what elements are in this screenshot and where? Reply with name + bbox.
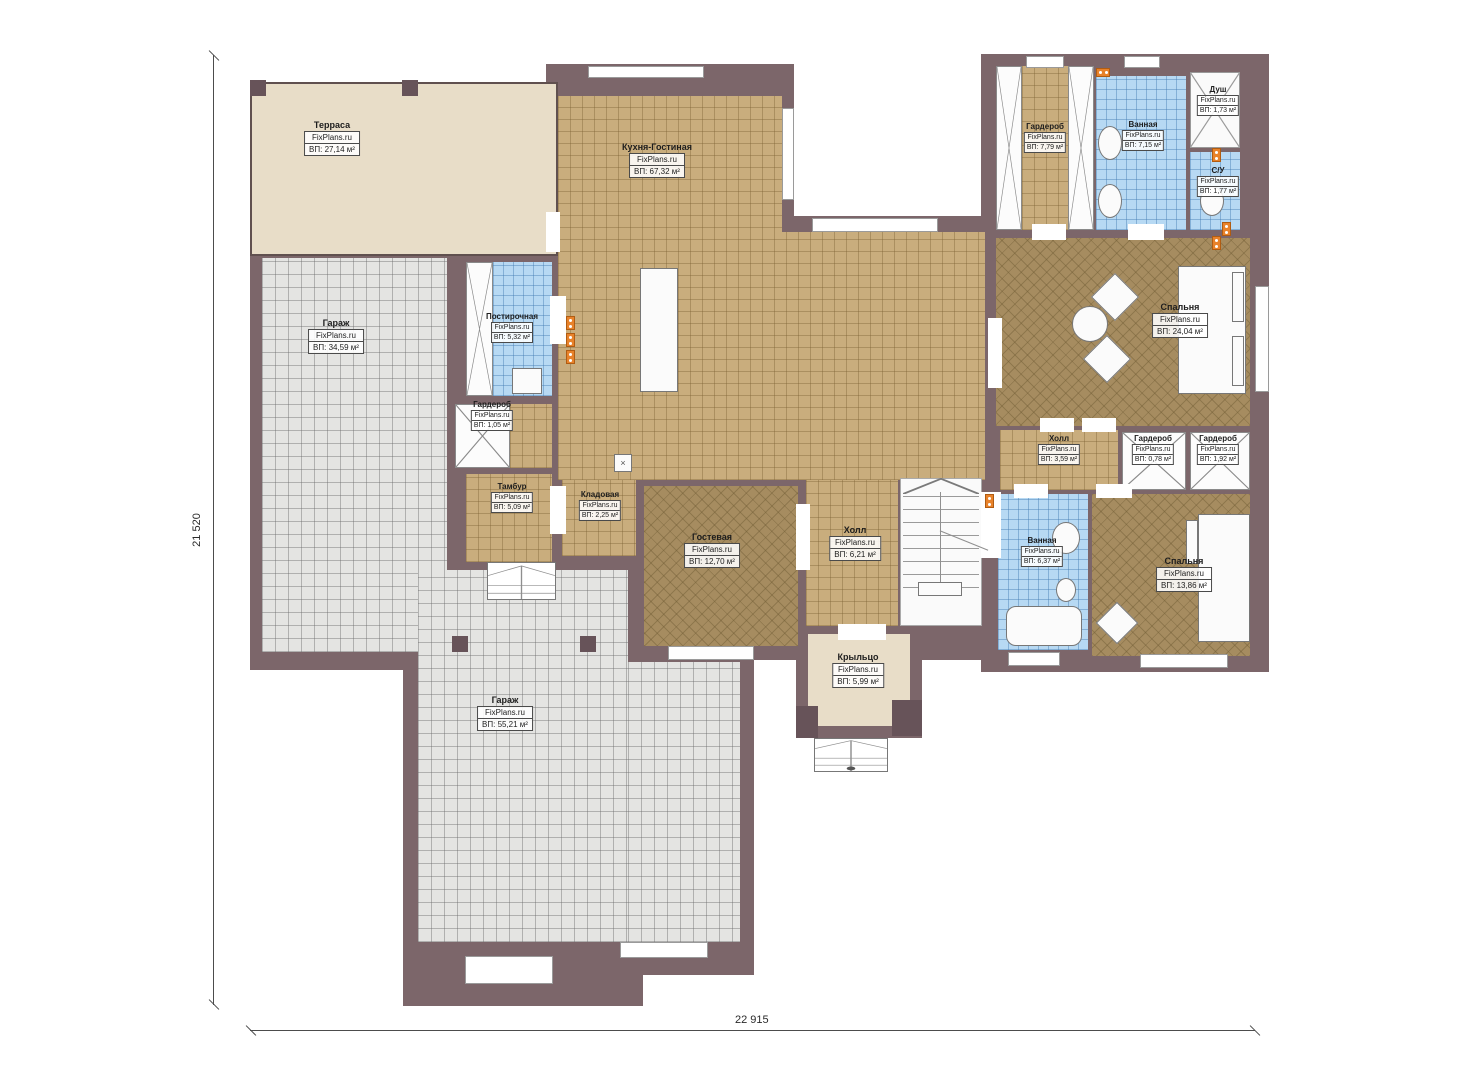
room-label-terrace: Терраса FixPlans.ru ВП: 27,14 м²: [304, 120, 360, 157]
room-label-kitchen: Кухня-Гостиная FixPlans.ru ВП: 67,32 м²: [622, 142, 692, 179]
brand-watermark: FixPlans.ru: [492, 323, 532, 333]
room-garage2-floor: [628, 662, 740, 942]
dimension-label-bottom: 22 915: [735, 1014, 769, 1026]
door-opening: [838, 624, 886, 640]
floor-plan: × Терраса FixPlans.ru ВП: 27,14 м²: [0, 0, 1474, 1080]
door-opening: [796, 504, 810, 570]
room-area: ВП: 1,92 м²: [1198, 455, 1238, 464]
brand-watermark: FixPlans.ru: [1025, 133, 1065, 143]
room-area: ВП: 1,73 м²: [1198, 106, 1238, 115]
dimension-tick: [209, 50, 220, 61]
brand-watermark: FixPlans.ru: [830, 537, 880, 549]
room-area: ВП: 27,14 м²: [305, 144, 359, 155]
brand-watermark: FixPlans.ru: [1157, 568, 1211, 580]
pillow-icon: [1232, 336, 1244, 386]
sink-icon: [1098, 184, 1122, 218]
wardrobe-x-icon: [1068, 66, 1094, 230]
room-terrace-floor: [250, 82, 558, 256]
room-name: Ванная: [1122, 120, 1164, 129]
room-area: ВП: 12,70 м²: [685, 556, 739, 567]
outlet-icon: [1212, 148, 1221, 162]
room-label-wardrobe779: Гардероб FixPlans.ru ВП: 7,79 м²: [1024, 122, 1066, 154]
room-name: Крыльцо: [832, 652, 884, 662]
room-area: ВП: 5,09 м²: [492, 503, 532, 512]
room-name: Гардероб: [1132, 434, 1174, 443]
room-label-wc: С/У FixPlans.ru ВП: 1,77 м²: [1197, 166, 1239, 198]
room-name: Спальня: [1156, 556, 1212, 566]
room-garage2-floor: [418, 570, 628, 942]
room-area: ВП: 6,21 м²: [830, 549, 880, 560]
brand-watermark: FixPlans.ru: [685, 544, 739, 556]
room-area: ВП: 1,05 м²: [472, 421, 512, 430]
room-area: ВП: 55,21 м²: [478, 719, 532, 730]
room-label-garage2: Гараж FixPlans.ru ВП: 55,21 м²: [477, 695, 533, 732]
room-wardrobe105-floor: [510, 404, 552, 468]
door-opening: [1014, 484, 1048, 498]
sink-icon: [1056, 578, 1076, 602]
brand-watermark: FixPlans.ru: [305, 132, 359, 144]
window: [1026, 56, 1064, 68]
brand-watermark: FixPlans.ru: [478, 707, 532, 719]
stair-up-arrow-icon: [903, 478, 979, 494]
terrace-pillar: [250, 80, 266, 96]
door-opening: [988, 318, 1002, 388]
door-opening: [1040, 418, 1074, 432]
brand-watermark: FixPlans.ru: [1198, 177, 1238, 187]
room-area: ВП: 67,32 м²: [630, 166, 684, 177]
brand-watermark: FixPlans.ru: [1198, 445, 1238, 455]
garage-pillar: [580, 636, 596, 652]
stair-landing: [918, 582, 962, 596]
door-opening: [1032, 224, 1066, 240]
room-name: Кухня-Гостиная: [622, 142, 692, 152]
washing-machine-icon: [512, 368, 542, 394]
brand-watermark: FixPlans.ru: [1022, 547, 1062, 557]
outlet-icon: [985, 494, 994, 508]
window: [1255, 286, 1269, 392]
stair-center-line: [940, 492, 941, 590]
table-x-icon: ×: [614, 454, 632, 472]
porch-steps-icon: [814, 738, 888, 772]
dimension-tick: [209, 999, 220, 1010]
window: [668, 646, 754, 660]
brand-watermark: FixPlans.ru: [1039, 445, 1079, 455]
outlet-icon: [566, 316, 575, 330]
room-area: ВП: 7,79 м²: [1025, 143, 1065, 152]
room-label-bathroom637: Ванная FixPlans.ru ВП: 6,37 м²: [1021, 536, 1063, 568]
room-name: Душ: [1197, 85, 1239, 94]
door-opening: [546, 212, 560, 252]
wardrobe-x-icon: [996, 66, 1022, 230]
room-name: Гараж: [308, 318, 364, 328]
sink-icon: [1098, 126, 1122, 160]
brand-watermark: FixPlans.ru: [1123, 131, 1163, 141]
room-area: ВП: 34,59 м²: [309, 342, 363, 353]
round-table-icon: [1072, 306, 1108, 342]
outlet-icon: [1096, 68, 1110, 77]
brand-watermark: FixPlans.ru: [580, 501, 620, 511]
room-name: Тамбур: [491, 482, 533, 491]
room-label-hall359: Холл FixPlans.ru ВП: 3,59 м²: [1038, 434, 1080, 466]
room-name: С/У: [1197, 166, 1239, 175]
room-label-wardrobe105: Гардероб FixPlans.ru ВП: 1,05 м²: [471, 400, 513, 432]
window: [812, 218, 938, 232]
room-area: ВП: 3,59 м²: [1039, 455, 1079, 464]
outlet-icon: [1212, 236, 1221, 250]
room-label-bedroom24: Спальня FixPlans.ru ВП: 24,04 м²: [1152, 302, 1208, 339]
pillow-icon: [1232, 272, 1244, 322]
door-opening: [550, 296, 566, 344]
room-area: ВП: 1,77 м²: [1198, 187, 1238, 196]
terrace-pillar: [402, 80, 418, 96]
kitchen-island-icon: [640, 268, 678, 392]
room-label-wardrobe192: Гардероб FixPlans.ru ВП: 1,92 м²: [1197, 434, 1239, 466]
room-name: Холл: [1038, 434, 1080, 443]
room-area: ВП: 13,86 м²: [1157, 580, 1211, 591]
window: [1008, 652, 1060, 666]
bathtub-icon: [1006, 606, 1082, 646]
room-label-shower: Душ FixPlans.ru ВП: 1,73 м²: [1197, 85, 1239, 117]
room-label-wardrobe078: Гардероб FixPlans.ru ВП: 0,78 м²: [1132, 434, 1174, 466]
brand-watermark: FixPlans.ru: [1133, 445, 1173, 455]
room-label-laundry: Постирочная FixPlans.ru ВП: 5,32 м²: [486, 312, 538, 344]
room-name: Гостевая: [684, 532, 740, 542]
dimension-label-left: 21 520: [191, 513, 203, 547]
room-area: ВП: 7,15 м²: [1123, 141, 1163, 150]
brand-watermark: FixPlans.ru: [1198, 96, 1238, 106]
room-label-tambour: Тамбур FixPlans.ru ВП: 5,09 м²: [491, 482, 533, 514]
room-name: Терраса: [304, 120, 360, 130]
window: [1124, 56, 1160, 68]
porch-pillar: [796, 706, 818, 738]
room-name: Гардероб: [1024, 122, 1066, 131]
room-label-garage1: Гараж FixPlans.ru ВП: 34,59 м²: [308, 318, 364, 355]
room-area: ВП: 2,25 м²: [580, 511, 620, 520]
room-name: Холл: [829, 525, 881, 535]
room-area: ВП: 5,32 м²: [492, 333, 532, 342]
room-area: ВП: 6,37 м²: [1022, 557, 1062, 566]
outlet-icon: [1222, 222, 1231, 236]
door-opening: [1096, 484, 1132, 498]
dimension-line-bottom: [250, 1030, 1255, 1031]
brand-watermark: FixPlans.ru: [492, 493, 532, 503]
brand-watermark: FixPlans.ru: [833, 664, 883, 676]
room-area: ВП: 5,99 м²: [833, 676, 883, 687]
garage-door: [620, 942, 708, 958]
central-hall-floor: [558, 232, 985, 480]
brand-watermark: FixPlans.ru: [1153, 314, 1207, 326]
room-label-porch: Крыльцо FixPlans.ru ВП: 5,99 м²: [832, 652, 884, 689]
door-opening: [1082, 418, 1116, 432]
door-opening: [1128, 224, 1164, 240]
room-area: ВП: 24,04 м²: [1153, 326, 1207, 337]
door-opening: [550, 486, 566, 534]
dimension-line-left: [213, 55, 214, 1005]
porch-pillar: [892, 700, 922, 736]
room-label-bedroom1386: Спальня FixPlans.ru ВП: 13,86 м²: [1156, 556, 1212, 593]
room-name: Ванная: [1021, 536, 1063, 545]
room-area: ВП: 0,78 м²: [1133, 455, 1173, 464]
room-name: Гардероб: [471, 400, 513, 409]
window: [782, 108, 794, 200]
garage-pillar: [452, 636, 468, 652]
room-name: Кладовая: [579, 490, 621, 499]
room-label-hall621: Холл FixPlans.ru ВП: 6,21 м²: [829, 525, 881, 562]
room-name: Спальня: [1152, 302, 1208, 312]
room-name: Гардероб: [1197, 434, 1239, 443]
window: [588, 66, 704, 78]
room-name: Гараж: [477, 695, 533, 705]
room-name: Постирочная: [486, 312, 538, 321]
brand-watermark: FixPlans.ru: [472, 411, 512, 421]
brand-watermark: FixPlans.ru: [309, 330, 363, 342]
garage-door: [465, 956, 553, 984]
outlet-icon: [566, 333, 575, 347]
outlet-icon: [566, 350, 575, 364]
entry-steps-icon: [487, 562, 556, 600]
window: [1140, 654, 1228, 668]
room-label-bathroom715: Ванная FixPlans.ru ВП: 7,15 м²: [1122, 120, 1164, 152]
room-label-pantry: Кладовая FixPlans.ru ВП: 2,25 м²: [579, 490, 621, 522]
brand-watermark: FixPlans.ru: [630, 154, 684, 166]
room-label-guestroom: Гостевая FixPlans.ru ВП: 12,70 м²: [684, 532, 740, 569]
